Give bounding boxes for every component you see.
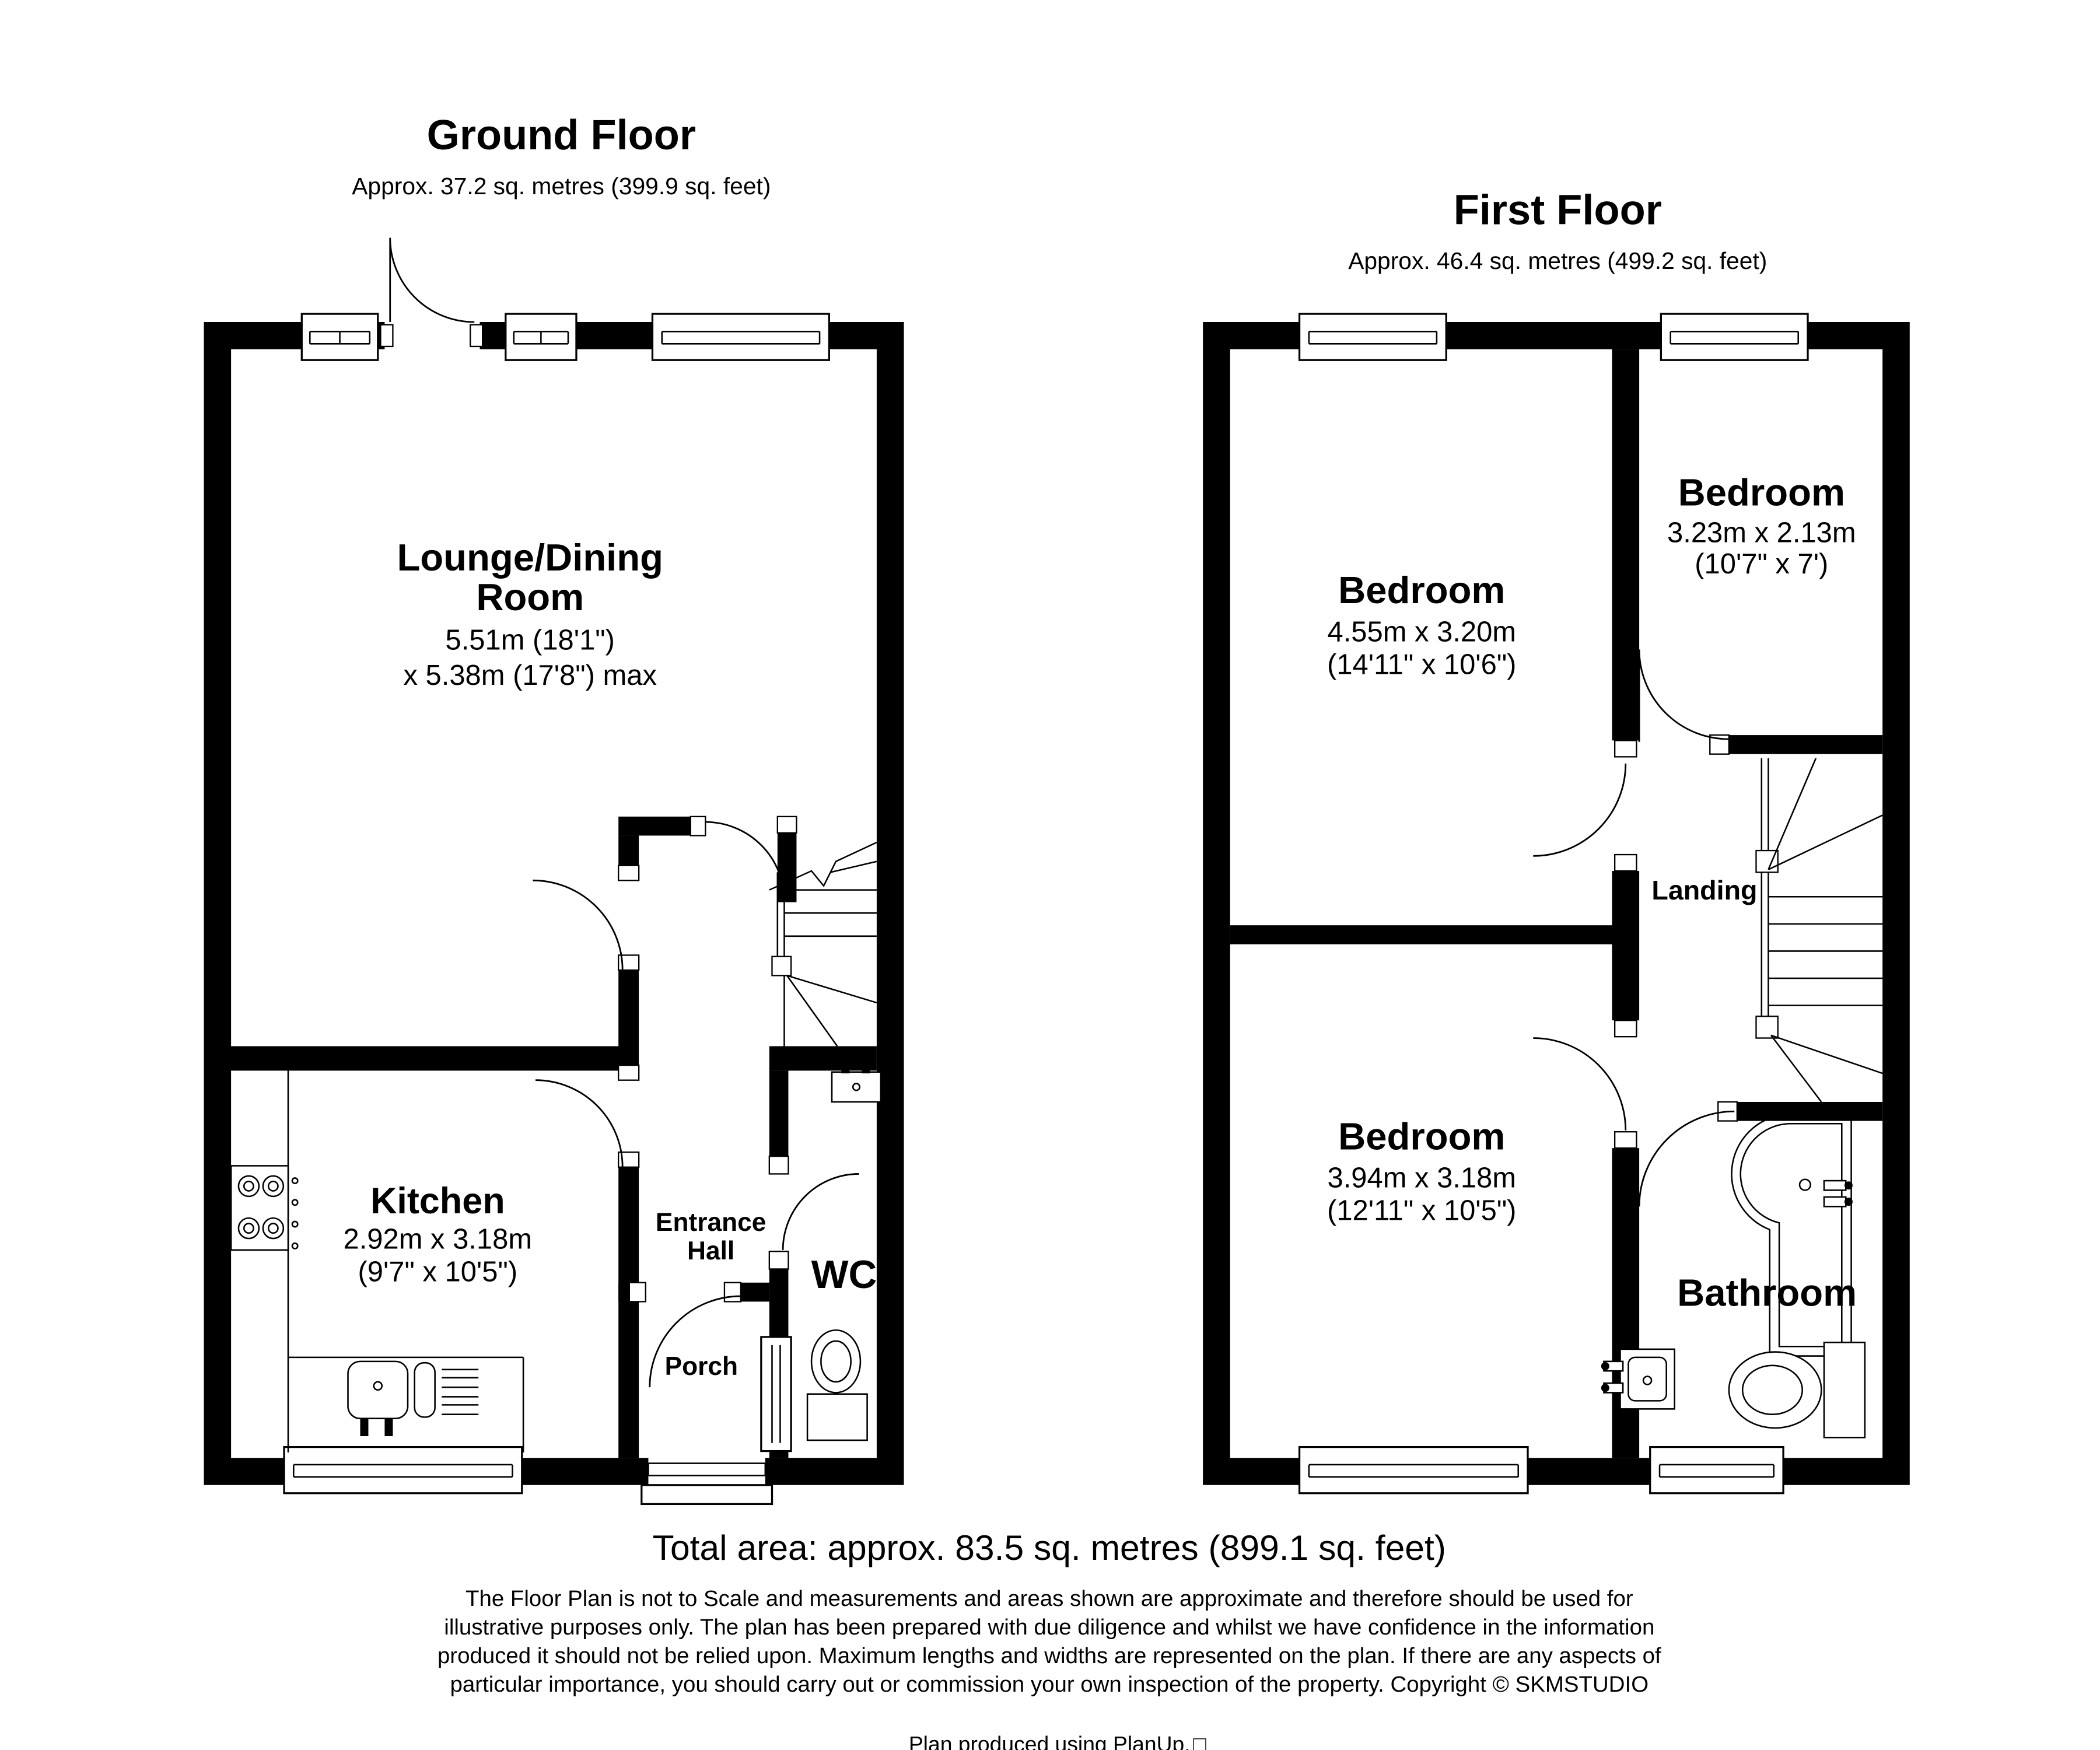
bedroom-left-label: Bedroom [1338, 569, 1505, 611]
front-door-icon [642, 1455, 772, 1504]
kitchen-sink-icon [348, 1361, 479, 1436]
bathroom-label: Bathroom [1677, 1271, 1857, 1314]
disclaimer-line-2: illustrative purposes only. The plan has… [444, 1615, 1654, 1640]
bedroom-tr-door [1639, 649, 1729, 741]
wc-fixtures [807, 1058, 881, 1440]
disclaimer-line-1: The Floor Plan is not to Scale and measu… [466, 1586, 1633, 1611]
produced-with-text: Plan produced using PlanUp.□ [909, 1731, 1206, 1750]
bathtub-icon [1731, 1114, 1852, 1356]
hob-icon [231, 1165, 297, 1249]
kitchen-dims-2: (9'7" x 10'5") [358, 1256, 517, 1287]
glazed-panel-icon [761, 1337, 791, 1451]
ground-doors [533, 822, 859, 1387]
first-floor-area: Approx. 46.4 sq. metres (499.2 sq. feet) [1348, 247, 1767, 274]
ground-floor-title: Ground Floor [427, 112, 696, 159]
bedroom-left-door-arc [1533, 764, 1625, 856]
lounge-label: Lounge/Dining [397, 536, 663, 579]
bedroom-left-dims-2: (14'11" x 10'6") [1327, 649, 1516, 680]
lounge-label-2: Room [476, 576, 584, 618]
lounge-dims-1: 5.51m (18'1") [446, 624, 615, 656]
entrance-hall-label-2: Hall [687, 1237, 734, 1265]
ground-outer-walls [204, 322, 904, 1485]
first-floor-plan: First Floor Approx. 46.4 sq. metres (499… [1203, 187, 1910, 1493]
disclaimer-line-4: particular importance, you should carry … [450, 1672, 1649, 1697]
bathroom-door-arc [1639, 1111, 1734, 1206]
missing-glyph-box: □ [1193, 1731, 1206, 1750]
bedroom-bottom-door-arc [1533, 1038, 1625, 1130]
floor-plan-page: Ground Floor Approx. 37.2 sq. metres (39… [0, 0, 2100, 1750]
lounge-door-arc [533, 880, 622, 970]
wc-door-arc [783, 1174, 859, 1249]
first-floor-title: First Floor [1454, 187, 1662, 233]
window-icon [1650, 1447, 1783, 1493]
garden-door-icon [380, 238, 482, 352]
ground-windows [284, 314, 829, 1493]
ground-floor-area: Approx. 37.2 sq. metres (399.9 sq. feet) [352, 173, 771, 199]
bedroom-bottom-dims-2: (12'11" x 10'5") [1327, 1195, 1516, 1227]
window-icon [506, 314, 576, 360]
floor-plan-canvas: Ground Floor Approx. 37.2 sq. metres (39… [0, 0, 2100, 1750]
produced-label: Plan produced using PlanUp. [909, 1731, 1191, 1750]
kitchen-label: Kitchen [370, 1181, 505, 1221]
window-icon [1300, 1447, 1528, 1493]
bedroom-bottom-label: Bedroom [1338, 1115, 1505, 1158]
wc-label: WC [811, 1253, 877, 1297]
window-icon [284, 1447, 522, 1493]
disclaimer-line-3: produced it should not be relied upon. M… [437, 1643, 1661, 1668]
toilet-icon [807, 1330, 867, 1440]
first-stairs [1756, 758, 1882, 1102]
bedroom-tr-label: Bedroom [1678, 471, 1845, 513]
window-icon [652, 314, 829, 360]
lounge-dims-2: x 5.38m (17'8") max [403, 660, 656, 691]
entrance-hall-label: Entrance [656, 1208, 766, 1237]
bedroom-left-dims-1: 4.55m x 3.20m [1328, 616, 1517, 647]
bedroom-tr-dims-2: (10'7" x 7') [1695, 548, 1828, 580]
window-icon [1300, 314, 1447, 360]
window-icon [302, 314, 377, 360]
kitchen-dims-1: 2.92m x 3.18m [344, 1224, 533, 1255]
bedroom-bottom-dims-1: 3.94m x 3.18m [1328, 1163, 1517, 1194]
total-area-text: Total area: approx. 83.5 sq. metres (899… [653, 1528, 1446, 1567]
footer: Total area: approx. 83.5 sq. metres (899… [437, 1528, 1661, 1750]
landing-label: Landing [1651, 875, 1757, 905]
porch-label: Porch [665, 1352, 738, 1381]
ground-floor-plan: Ground Floor Approx. 37.2 sq. metres (39… [204, 112, 904, 1504]
window-icon [1661, 314, 1808, 360]
kitchen-door-arc [535, 1080, 622, 1167]
toilet-icon [1729, 1342, 1865, 1437]
bedroom-tr-dims-1: 3.23m x 2.13m [1667, 517, 1856, 548]
